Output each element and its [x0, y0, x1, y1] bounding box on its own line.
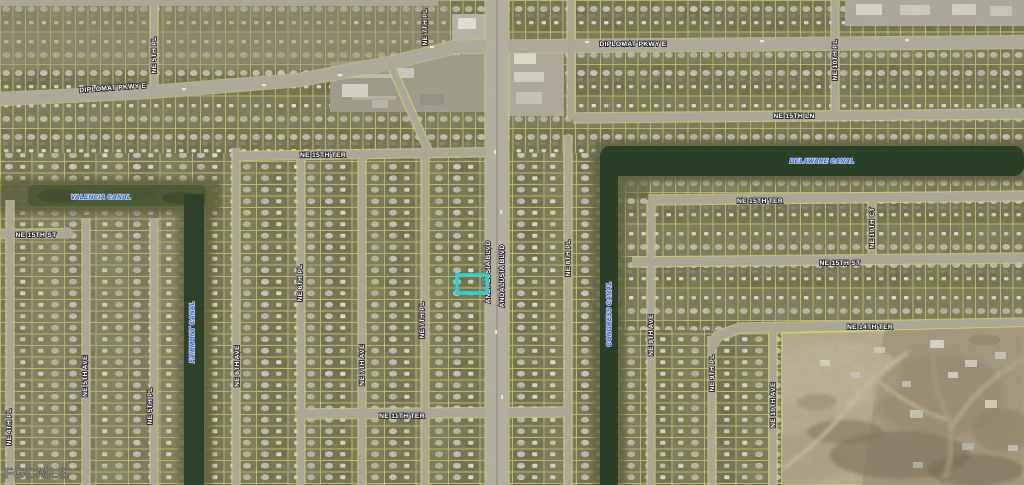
svg-text:FAIRMONT CANAL: FAIRMONT CANAL	[189, 301, 196, 363]
svg-text:DIPLOMAT PKWY E: DIPLOMAT PKWY E	[599, 41, 666, 48]
svg-text:NE 14TH TER: NE 14TH TER	[847, 324, 893, 331]
svg-text:FGCMLS: FGCMLS	[4, 465, 69, 482]
svg-text:NE 4TH PL: NE 4TH PL	[6, 409, 13, 446]
svg-text:NE 11TH TER: NE 11TH TER	[379, 413, 425, 420]
svg-text:NE 15TH ST: NE 15TH ST	[16, 232, 58, 239]
svg-text:NE 7TH AVE: NE 7TH AVE	[359, 344, 366, 386]
svg-text:DELAWARE CANAL: DELAWARE CANAL	[790, 158, 855, 165]
svg-text:NE 9TH PL: NE 9TH PL	[709, 355, 716, 392]
svg-text:CONGRESS CANAL: CONGRESS CANAL	[606, 282, 613, 347]
svg-text:NE 5TH PL: NE 5TH PL	[147, 388, 154, 425]
svg-text:NE 6TH AVE: NE 6TH AVE	[234, 345, 241, 387]
svg-text:VALENCIA CANAL: VALENCIA CANAL	[71, 194, 131, 201]
svg-text:NE 7TH PL: NE 7TH PL	[422, 9, 429, 46]
svg-text:NE 15TH ST: NE 15TH ST	[820, 260, 862, 267]
svg-text:NE 15TH TER: NE 15TH TER	[737, 198, 783, 205]
svg-text:NE 8TH PL: NE 8TH PL	[565, 240, 572, 277]
svg-text:NE 10TH PL: NE 10TH PL	[832, 40, 839, 81]
svg-text:NE 5TH AVE: NE 5TH AVE	[82, 355, 89, 397]
svg-text:NE 10TH CT: NE 10TH CT	[869, 207, 876, 249]
svg-text:NE 6TH PL: NE 6TH PL	[297, 265, 304, 302]
svg-text:NE 15TH LN: NE 15TH LN	[773, 113, 814, 120]
svg-text:NE 5TH PL: NE 5TH PL	[151, 37, 158, 74]
svg-text:NE 7TH PL: NE 7TH PL	[419, 302, 426, 339]
svg-text:NE 10TH AVE: NE 10TH AVE	[770, 382, 777, 428]
svg-text:ANDALUSIA BLVD: ANDALUSIA BLVD	[499, 245, 506, 308]
svg-text:NE 9TH AVE: NE 9TH AVE	[648, 314, 655, 356]
svg-text:NE 15TH TER: NE 15TH TER	[300, 152, 346, 159]
